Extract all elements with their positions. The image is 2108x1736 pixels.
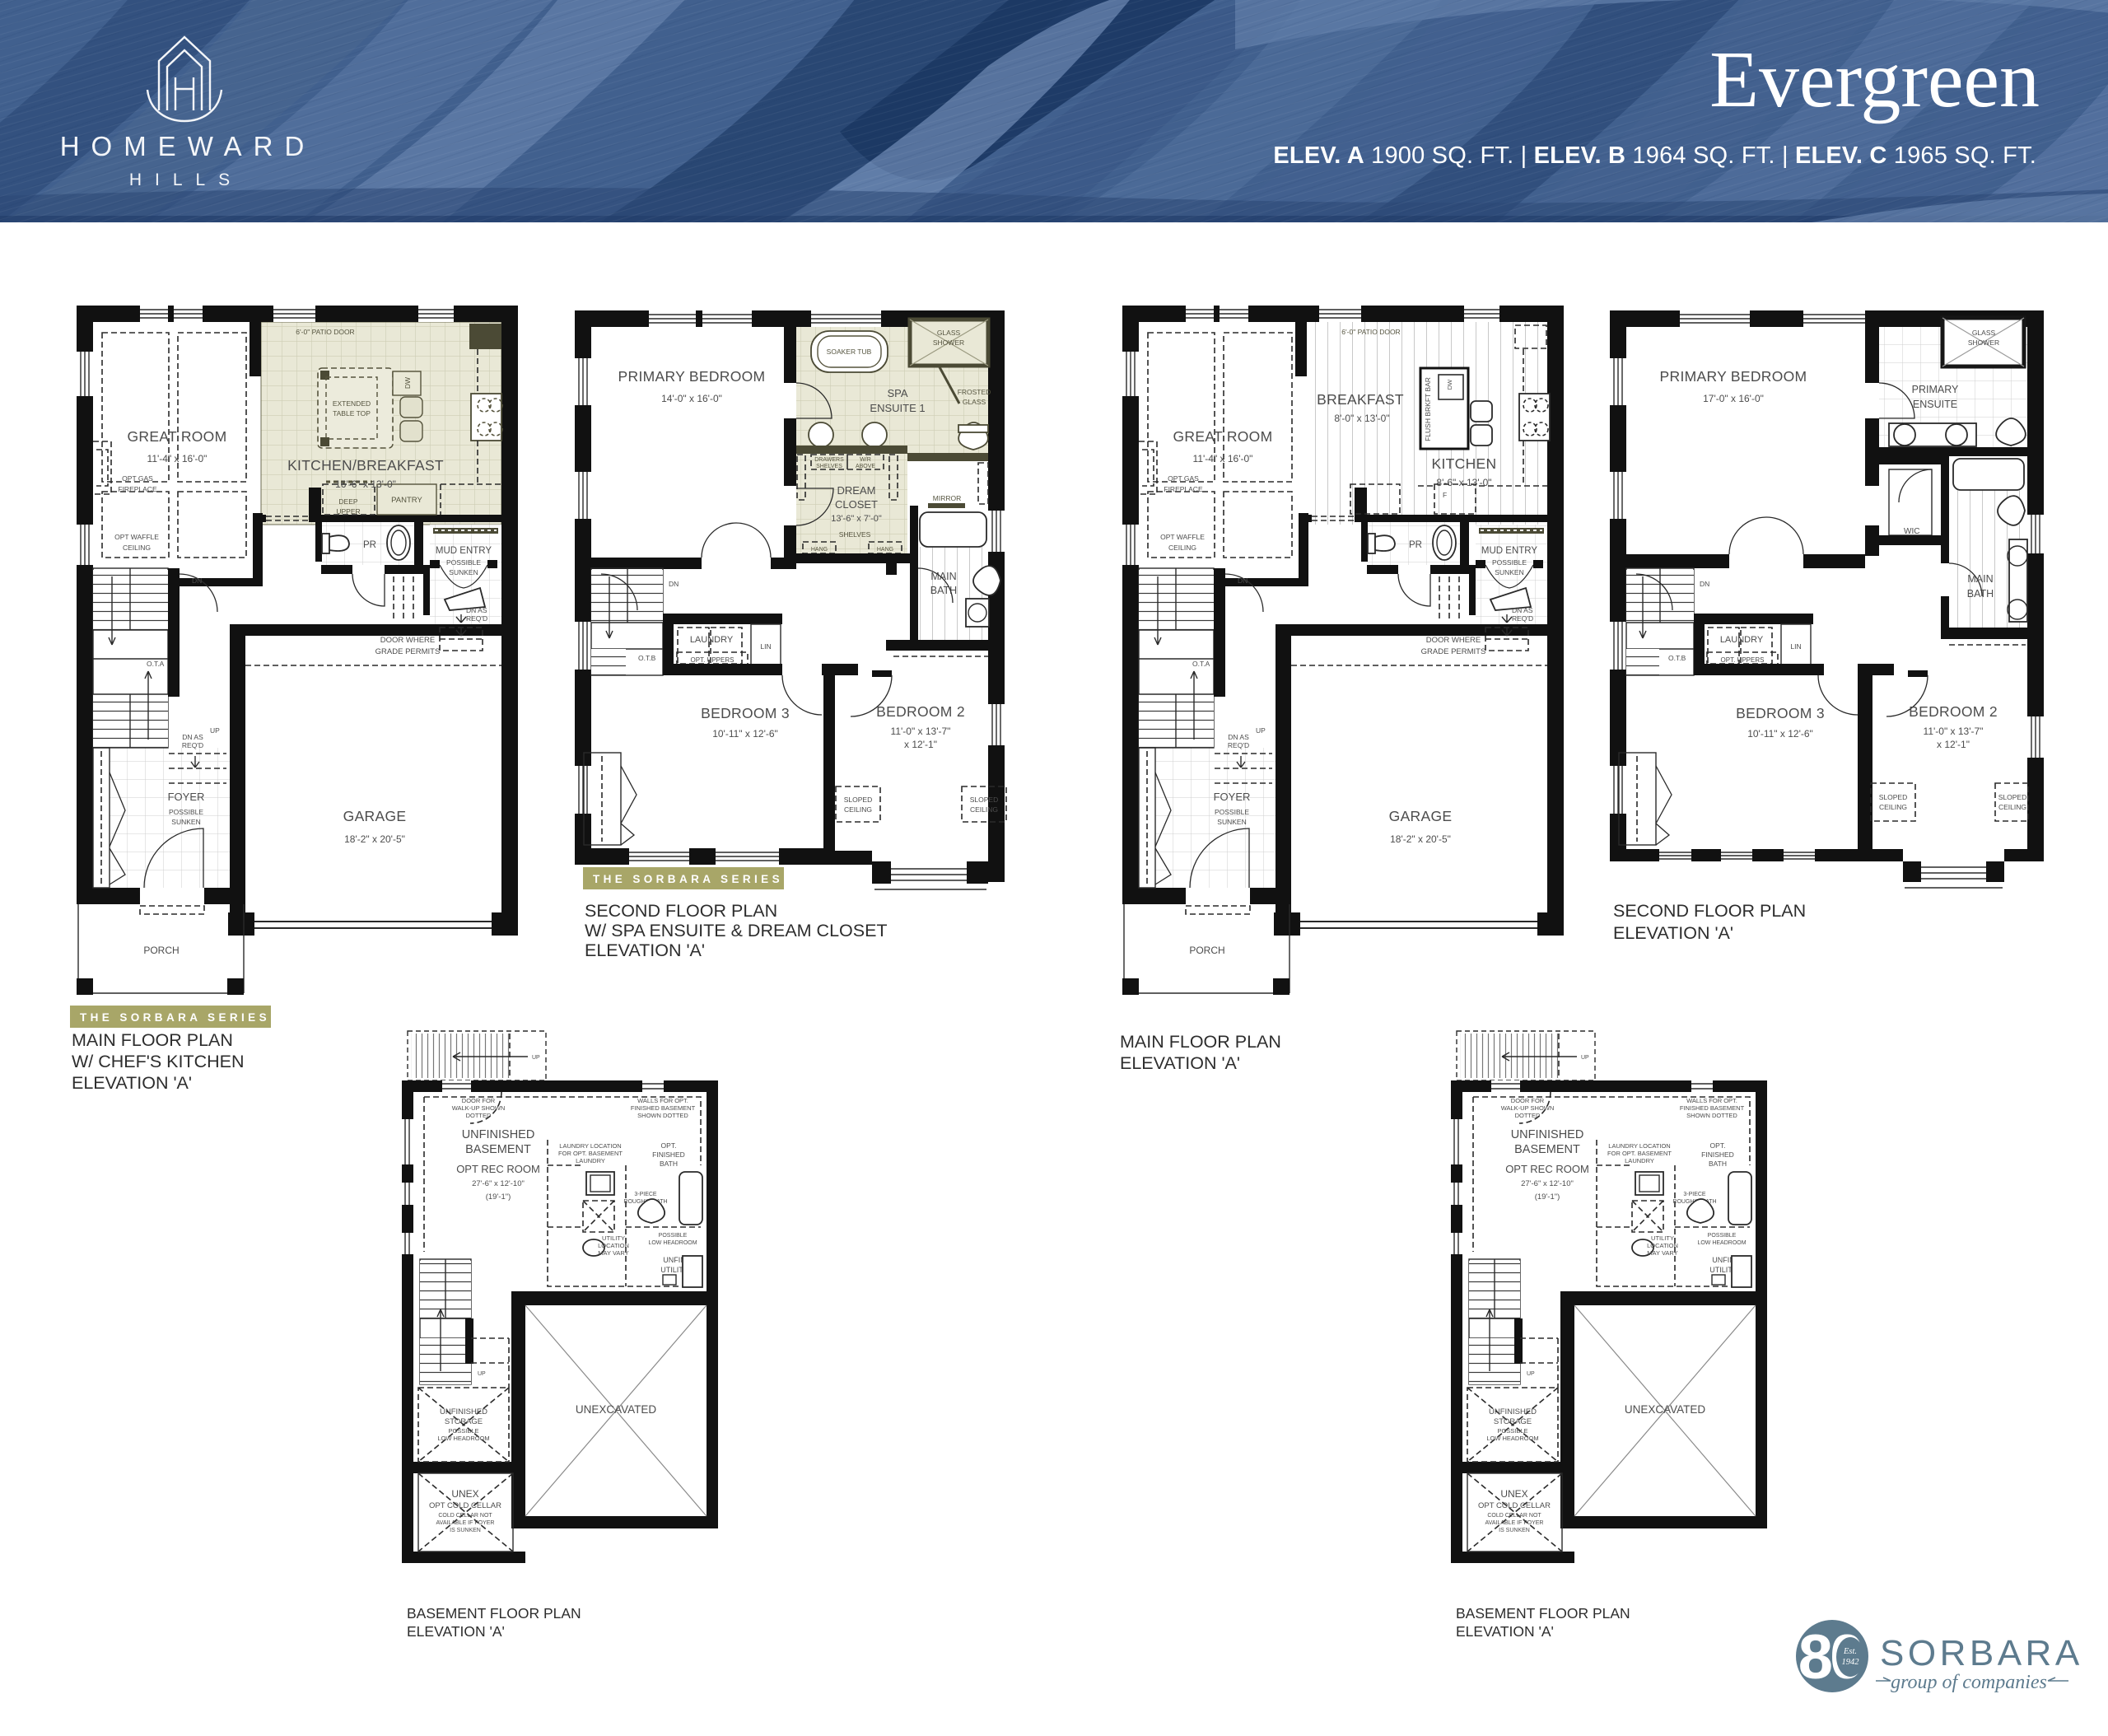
svg-text:W/ SPA ENSUITE & DREAM CLOSET: W/ SPA ENSUITE & DREAM CLOSET (585, 921, 888, 940)
svg-text:MIRROR: MIRROR (933, 494, 961, 502)
svg-text:DREAM: DREAM (837, 484, 876, 497)
svg-text:LAUNDRY LOCATION: LAUNDRY LOCATION (559, 1142, 621, 1150)
svg-text:x 12'-1": x 12'-1" (1937, 739, 1970, 750)
svg-text:KITCHEN: KITCHEN (1432, 455, 1497, 472)
svg-text:LAUNDRY: LAUNDRY (1720, 635, 1764, 645)
svg-text:UNFINISHED: UNFINISHED (462, 1128, 535, 1141)
svg-text:BATH: BATH (930, 585, 957, 596)
svg-text:DN: DN (1700, 580, 1709, 588)
svg-text:DN: DN (192, 576, 202, 585)
svg-text:SHOWN DOTTED: SHOWN DOTTED (637, 1112, 688, 1119)
svg-text:SLOPED: SLOPED (970, 796, 999, 804)
svg-text:ELEVATION 'A': ELEVATION 'A' (407, 1623, 505, 1640)
svg-text:O.T.B: O.T.B (638, 654, 656, 662)
svg-text:OPT WAFFLE: OPT WAFFLE (114, 533, 159, 541)
svg-text:POSSIBLE: POSSIBLE (446, 558, 481, 567)
svg-text:SHOWER: SHOWER (1968, 338, 1999, 347)
svg-text:SORBARA: SORBARA (1880, 1633, 2083, 1673)
svg-text:ABOVE: ABOVE (856, 464, 875, 469)
svg-text:SHELVES: SHELVES (839, 530, 871, 539)
svg-text:SUNKEN: SUNKEN (171, 818, 200, 826)
svg-text:DEEP: DEEP (338, 497, 357, 506)
svg-text:O.T.A: O.T.A (147, 660, 165, 668)
svg-text:LOCATION: LOCATION (598, 1242, 629, 1249)
svg-text:THE SORBARA SERIES: THE SORBARA SERIES (80, 1011, 270, 1024)
svg-text:OPT. UPPERS: OPT. UPPERS (691, 656, 735, 664)
svg-text:MAY VARY: MAY VARY (598, 1249, 628, 1257)
svg-text:FROSTED: FROSTED (958, 388, 991, 396)
svg-text:10'-11" x 12'-6": 10'-11" x 12'-6" (1747, 728, 1813, 740)
svg-text:8'-0" x 13'-0": 8'-0" x 13'-0" (1334, 413, 1389, 424)
svg-text:HANG: HANG (877, 547, 893, 553)
svg-text:DW: DW (1446, 379, 1453, 390)
svg-text:OPT.: OPT. (661, 1141, 677, 1150)
svg-text:x 12'-1": x 12'-1" (904, 739, 937, 750)
svg-text:MAIN FLOOR PLAN: MAIN FLOOR PLAN (1120, 1032, 1281, 1052)
svg-text:16'-6" x 13'-0": 16'-6" x 13'-0" (335, 478, 396, 490)
svg-text:OPT REC ROOM: OPT REC ROOM (456, 1163, 540, 1175)
svg-text:3-PIECE: 3-PIECE (634, 1192, 657, 1197)
svg-text:6'-0" PATIO DOOR: 6'-0" PATIO DOOR (1341, 328, 1400, 336)
svg-text:KITCHEN/BREAKFAST: KITCHEN/BREAKFAST (287, 457, 444, 474)
svg-text:27'-6" x 12'-10": 27'-6" x 12'-10" (472, 1179, 525, 1188)
svg-text:OPT GAS: OPT GAS (122, 474, 153, 483)
svg-text:GARAGE: GARAGE (343, 808, 407, 824)
svg-text:CEILING: CEILING (1879, 803, 1907, 811)
svg-text:GREAT ROOM: GREAT ROOM (128, 428, 227, 445)
svg-text:BEDROOM 2: BEDROOM 2 (1909, 703, 1998, 720)
svg-text:GLASS: GLASS (937, 329, 961, 337)
svg-text:FOR OPT. BASEMENT: FOR OPT. BASEMENT (558, 1150, 623, 1157)
svg-text:AVAILABLE IF FOYER: AVAILABLE IF FOYER (436, 1520, 495, 1526)
svg-text:SUNKEN: SUNKEN (449, 568, 478, 576)
svg-text:SOAKER TUB: SOAKER TUB (827, 348, 872, 356)
svg-text:WALLS FOR OPT.: WALLS FOR OPT. (637, 1097, 688, 1104)
svg-text:1942: 1942 (1842, 1658, 1860, 1667)
svg-text:HANG: HANG (811, 547, 828, 553)
svg-text:(19'-1"): (19'-1") (486, 1192, 511, 1202)
svg-text:Evergreen: Evergreen (1709, 35, 2040, 124)
svg-text:POSSIBLE: POSSIBLE (448, 1427, 478, 1435)
svg-text:PORCH: PORCH (143, 945, 179, 956)
svg-text:GLASS: GLASS (963, 398, 986, 406)
svg-text:OPT. UPPERS: OPT. UPPERS (1721, 656, 1765, 664)
svg-text:BEDROOM 3: BEDROOM 3 (701, 705, 790, 721)
svg-text:PRIMARY: PRIMARY (1912, 384, 1959, 395)
svg-text:11'-0" x 13'-7": 11'-0" x 13'-7" (1924, 726, 1984, 737)
svg-text:REQ'D: REQ'D (182, 741, 203, 749)
svg-text:LIN: LIN (1790, 642, 1801, 651)
svg-text:FLUSH BRKFT BAR: FLUSH BRKFT BAR (1424, 377, 1432, 441)
svg-text:17'-0" x 16'-0": 17'-0" x 16'-0" (1703, 393, 1764, 404)
svg-text:SLOPED: SLOPED (1879, 793, 1908, 801)
svg-text:DN AS: DN AS (182, 733, 203, 741)
svg-text:MUD ENTRY: MUD ENTRY (436, 546, 492, 556)
svg-text:BEDROOM 2: BEDROOM 2 (876, 703, 965, 720)
svg-text:EXTENDED: EXTENDED (333, 399, 371, 408)
svg-text:CEILING: CEILING (1998, 803, 2026, 811)
svg-text:F: F (1443, 491, 1447, 499)
svg-text:BASEMENT FLOOR PLAN: BASEMENT FLOOR PLAN (407, 1605, 581, 1622)
svg-text:REQ'D: REQ'D (466, 614, 487, 623)
svg-text:11'-4" x 16'-0": 11'-4" x 16'-0" (147, 453, 208, 464)
svg-text:8'-6" x 13'-0": 8'-6" x 13'-0" (1436, 477, 1491, 488)
svg-text:MAIN FLOOR PLAN: MAIN FLOOR PLAN (72, 1030, 233, 1050)
svg-text:ELEVATION 'A': ELEVATION 'A' (72, 1073, 192, 1093)
svg-text:LOW HEADROOM: LOW HEADROOM (437, 1435, 489, 1442)
svg-text:PANTRY: PANTRY (391, 496, 422, 505)
svg-text:BATH: BATH (1967, 588, 1994, 600)
svg-text:UNEX: UNEX (451, 1488, 478, 1500)
svg-text:SHELVES: SHELVES (816, 464, 842, 469)
svg-text:13'-6" x 7'-0": 13'-6" x 7'-0" (831, 514, 882, 524)
svg-text:ELEVATION 'A': ELEVATION 'A' (1120, 1053, 1240, 1073)
svg-text:WIC: WIC (1904, 527, 1919, 536)
svg-text:ENSUITE 1: ENSUITE 1 (870, 402, 925, 414)
svg-text:CEILING: CEILING (844, 805, 872, 814)
svg-text:10'-11" x 12'-6": 10'-11" x 12'-6" (712, 728, 778, 740)
svg-text:FINISHED: FINISHED (652, 1150, 685, 1159)
svg-text:ELEVATION 'A': ELEVATION 'A' (585, 940, 705, 960)
svg-text:GRADE PERMITS: GRADE PERMITS (375, 647, 441, 656)
svg-text:DRAWERS: DRAWERS (814, 457, 844, 463)
svg-text:MAIN: MAIN (1967, 573, 1993, 585)
svg-text:POSSIBLE: POSSIBLE (659, 1233, 688, 1239)
svg-text:SLOPED: SLOPED (844, 796, 873, 804)
svg-text:FIREPLACE: FIREPLACE (118, 485, 157, 493)
svg-text:6'-0" PATIO DOOR: 6'-0" PATIO DOOR (296, 328, 354, 336)
svg-text:W/ CHEF'S KITCHEN: W/ CHEF'S KITCHEN (72, 1052, 245, 1071)
svg-text:DN: DN (669, 580, 679, 588)
svg-text:14'-0" x 16'-0": 14'-0" x 16'-0" (661, 393, 722, 404)
svg-text:BASEMENT: BASEMENT (465, 1143, 531, 1156)
svg-text:DOOR WHERE: DOOR WHERE (380, 636, 436, 645)
svg-text:UP: UP (210, 726, 220, 735)
svg-text:SECOND FLOOR PLAN: SECOND FLOOR PLAN (585, 901, 777, 921)
svg-text:ELEV. A 1900 SQ. FT. | EL: ELEV. A 1900 SQ. FT. | ELEV. B 1964 SQ. … (1273, 142, 2036, 169)
svg-text:DOTTED: DOTTED (466, 1112, 492, 1119)
svg-text:Est.: Est. (1843, 1647, 1857, 1656)
svg-text:FOYER: FOYER (168, 791, 205, 803)
svg-text:SHOWER: SHOWER (933, 338, 964, 347)
svg-text:SPA: SPA (887, 387, 907, 399)
svg-text:CEILING: CEILING (123, 544, 151, 552)
svg-text:18'-2" x 20'-5": 18'-2" x 20'-5" (344, 833, 405, 845)
svg-text:OPT COLD CELLAR: OPT COLD CELLAR (429, 1501, 501, 1510)
svg-text:CLOSET: CLOSET (835, 498, 878, 511)
svg-text:UNFINISHED: UNFINISHED (440, 1407, 487, 1416)
svg-text:SLOPED: SLOPED (1998, 793, 2027, 801)
svg-text:GLASS: GLASS (1972, 329, 1996, 337)
svg-text:UP: UP (478, 1371, 486, 1377)
svg-text:DW: DW (403, 377, 412, 389)
svg-text:HOMEWARD: HOMEWARD (60, 131, 316, 161)
svg-text:UPPER: UPPER (336, 507, 360, 516)
svg-text:BEDROOM 3: BEDROOM 3 (1736, 705, 1825, 721)
svg-text:DN AS: DN AS (466, 606, 487, 614)
svg-text:BATH: BATH (660, 1160, 678, 1168)
svg-text:PRIMARY BEDROOM: PRIMARY BEDROOM (1660, 368, 1807, 385)
svg-text:W/R: W/R (860, 457, 871, 463)
svg-text:group of companies: group of companies (1891, 1672, 2047, 1693)
svg-text:LOW HEADROOM: LOW HEADROOM (648, 1240, 697, 1246)
svg-text:IS SUNKEN: IS SUNKEN (450, 1528, 481, 1533)
svg-text:11'-0" x 13'-7": 11'-0" x 13'-7" (891, 726, 951, 737)
svg-text:ENSUITE: ENSUITE (1913, 399, 1957, 410)
svg-text:LAUNDRY: LAUNDRY (576, 1157, 605, 1164)
svg-text:PRIMARY BEDROOM: PRIMARY BEDROOM (618, 368, 766, 385)
svg-text:HILLS: HILLS (129, 170, 243, 189)
svg-text:WALK-UP SHOWN: WALK-UP SHOWN (452, 1104, 506, 1112)
svg-text:UTILITY: UTILITY (602, 1234, 625, 1242)
svg-text:TABLE TOP: TABLE TOP (333, 409, 371, 418)
svg-text:STORAGE: STORAGE (445, 1417, 483, 1426)
svg-text:O.T.B: O.T.B (1668, 654, 1686, 662)
svg-text:LIN: LIN (760, 642, 771, 651)
svg-text:UP: UP (532, 1055, 540, 1061)
svg-text:UNEXCAVATED: UNEXCAVATED (576, 1403, 657, 1416)
svg-text:POSSIBLE: POSSIBLE (169, 808, 203, 816)
svg-text:CEILING: CEILING (970, 805, 998, 814)
svg-text:THE SORBARA SERIES: THE SORBARA SERIES (593, 873, 783, 885)
svg-text:DOOR FOR: DOOR FOR (462, 1097, 496, 1104)
svg-text:BREAKFAST: BREAKFAST (1317, 391, 1404, 408)
svg-text:LAUNDRY: LAUNDRY (690, 635, 734, 645)
svg-text:PR: PR (363, 540, 376, 550)
svg-text:ELEVATION 'A': ELEVATION 'A' (1613, 923, 1733, 943)
svg-text:SECOND FLOOR PLAN: SECOND FLOOR PLAN (1613, 901, 1806, 921)
svg-text:COLD CELLAR NOT: COLD CELLAR NOT (438, 1513, 492, 1519)
svg-text:FINISHED BASEMENT: FINISHED BASEMENT (631, 1104, 696, 1112)
